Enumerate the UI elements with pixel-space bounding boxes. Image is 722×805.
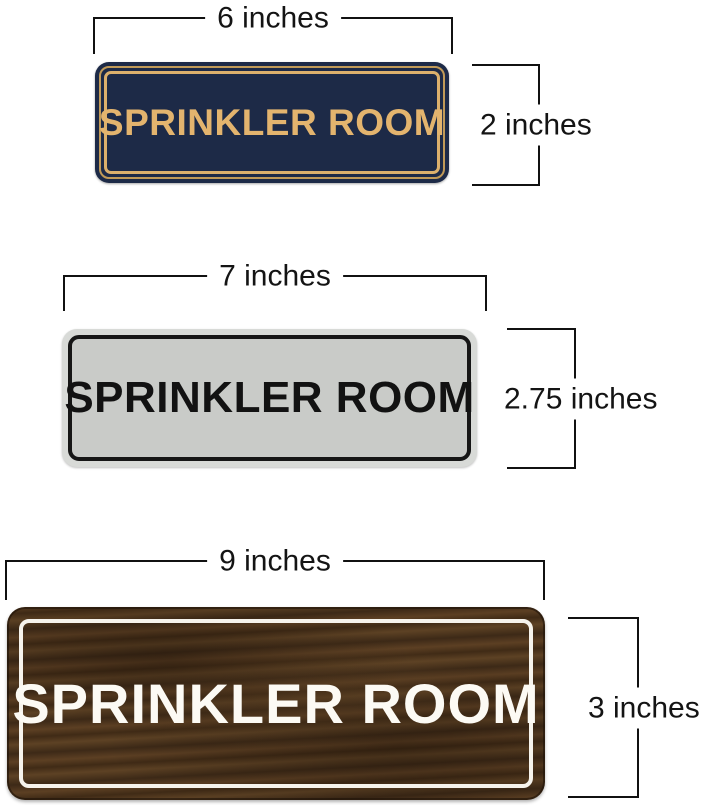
width-dimension-label-sign2: 7 inches bbox=[207, 260, 343, 293]
sign-walnut-text: SPRINKLER ROOM bbox=[12, 671, 539, 736]
width-dimension-label-sign3: 9 inches bbox=[207, 545, 343, 578]
width-dimension-label-sign1: 6 inches bbox=[205, 2, 341, 35]
sign-navy-gold: SPRINKLER ROOM bbox=[95, 62, 449, 183]
sign-navy-text: SPRINKLER ROOM bbox=[99, 102, 445, 144]
width-dimension-bracket-sign2: 7 inches bbox=[63, 275, 487, 311]
sign-silver-text: SPRINKLER ROOM bbox=[64, 373, 474, 423]
height-dimension-bracket-sign2: 2.75 inches bbox=[507, 328, 576, 469]
height-dimension-label-sign1: 2 inches bbox=[474, 105, 598, 146]
sign-silver-black: SPRINKLER ROOM bbox=[62, 329, 477, 467]
product-size-diagram: 6 inches SPRINKLER ROOM 2 inches 7 inche… bbox=[0, 0, 722, 805]
height-dimension-bracket-sign1: 2 inches bbox=[472, 64, 540, 186]
height-dimension-label-sign2: 2.75 inches bbox=[498, 378, 663, 419]
sign-silver-inner-panel: SPRINKLER ROOM bbox=[68, 335, 471, 461]
width-dimension-bracket-sign3: 9 inches bbox=[5, 560, 545, 600]
height-dimension-bracket-sign3: 3 inches bbox=[568, 617, 639, 798]
width-dimension-bracket-sign1: 6 inches bbox=[93, 17, 453, 54]
sign-walnut-wood: SPRINKLER ROOM bbox=[7, 607, 545, 800]
height-dimension-label-sign3: 3 inches bbox=[582, 687, 706, 728]
